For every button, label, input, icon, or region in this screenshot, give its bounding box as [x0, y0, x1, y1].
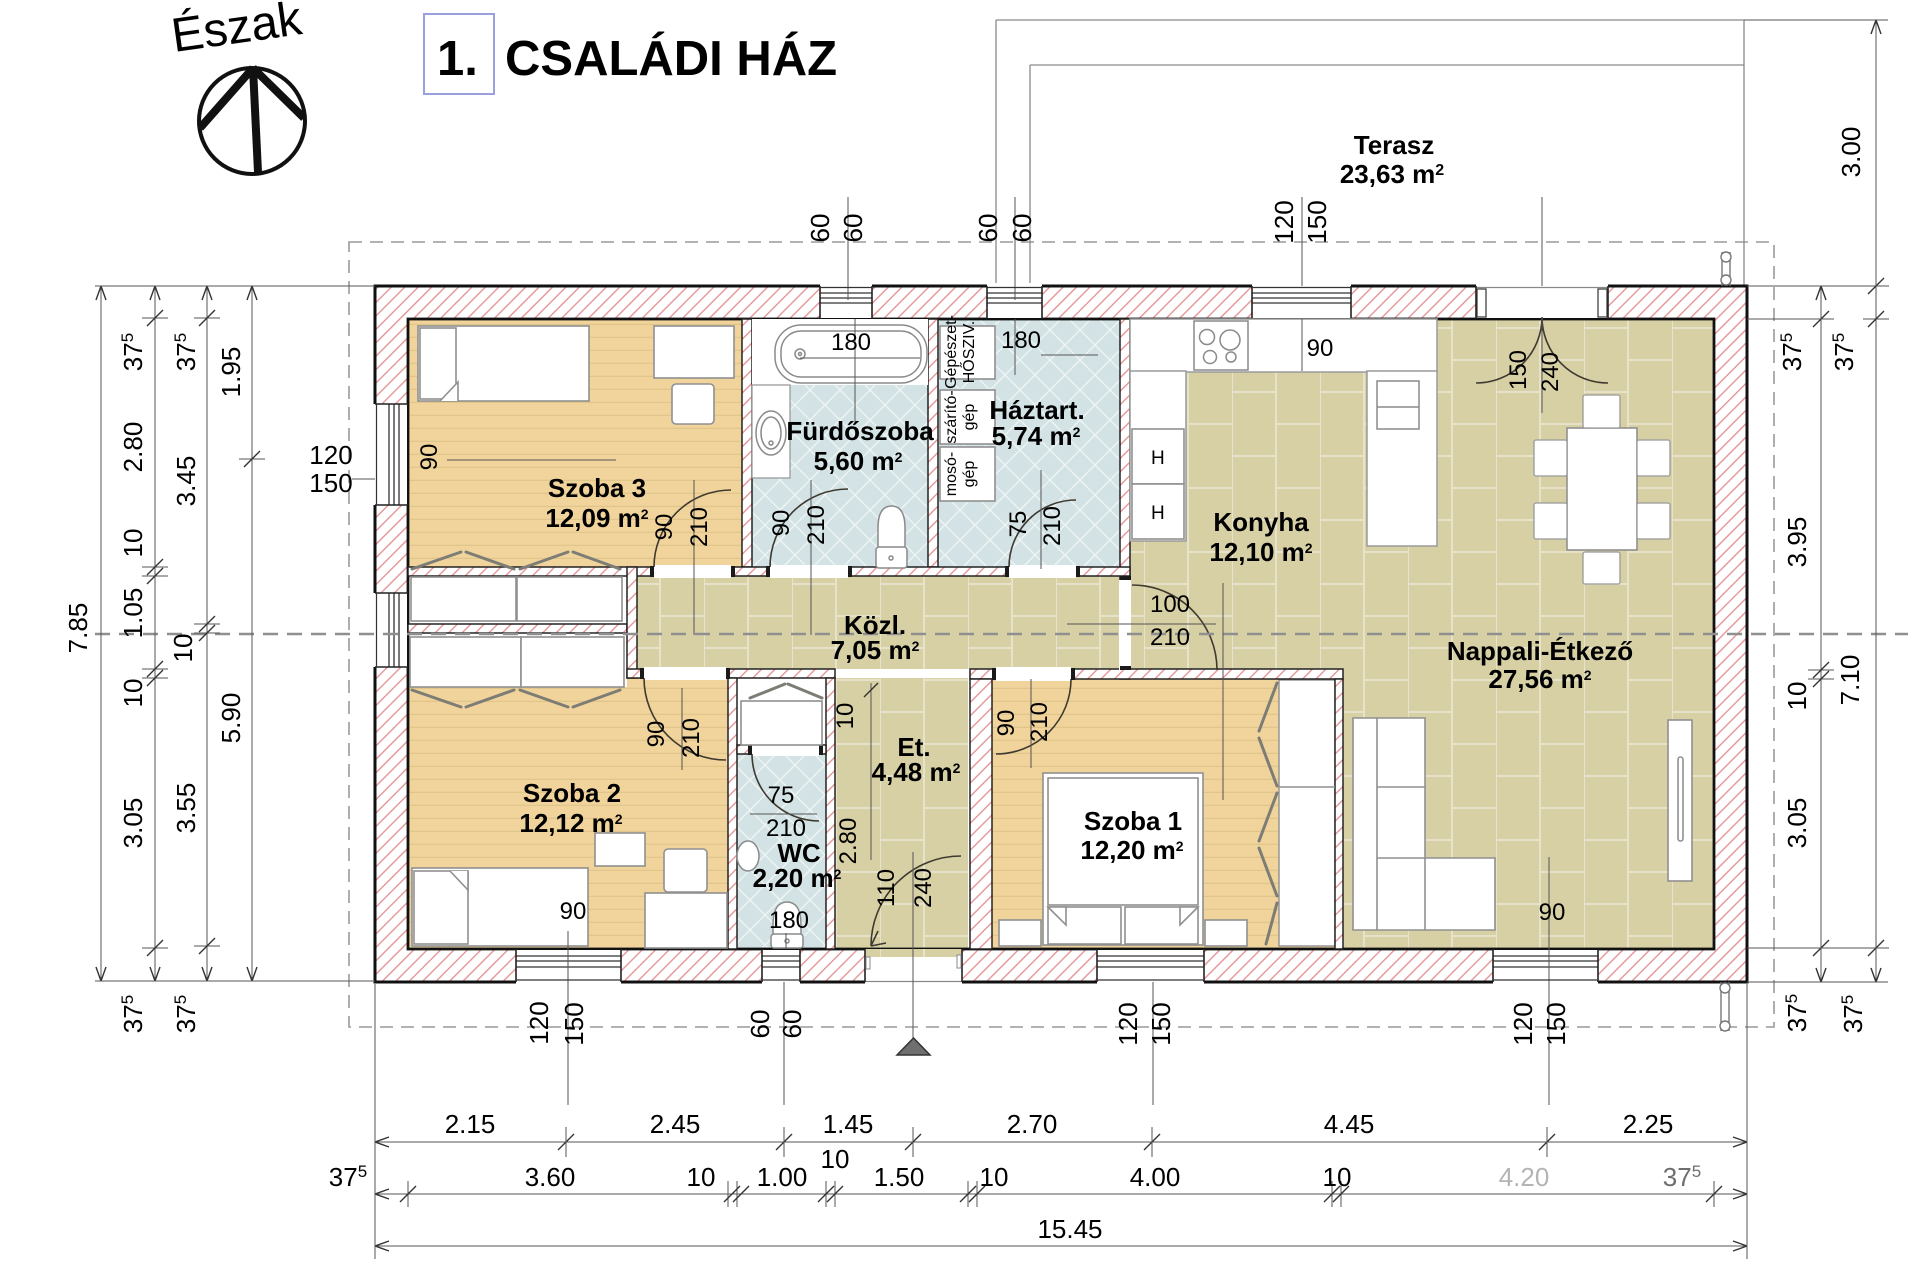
svg-text:Konyha: Konyha	[1213, 507, 1309, 537]
svg-text:12,12 m2: 12,12 m2	[519, 808, 622, 838]
svg-text:210: 210	[1039, 506, 1066, 546]
svg-text:3.05: 3.05	[1782, 798, 1812, 849]
svg-text:90: 90	[651, 514, 678, 541]
svg-text:120: 120	[524, 1001, 554, 1044]
svg-text:90: 90	[768, 510, 795, 537]
svg-text:210: 210	[686, 507, 713, 547]
svg-text:1.95: 1.95	[216, 347, 246, 398]
svg-text:10: 10	[832, 703, 859, 730]
svg-text:10: 10	[821, 1144, 850, 1174]
svg-text:3.60: 3.60	[525, 1162, 576, 1192]
svg-text:HŐSZIV.: HŐSZIV.	[959, 321, 978, 384]
svg-text:210: 210	[1150, 624, 1190, 651]
svg-text:150: 150	[309, 468, 352, 498]
svg-text:120: 120	[1113, 1002, 1143, 1045]
svg-text:2,20 m2: 2,20 m2	[753, 863, 842, 893]
svg-text:2.70: 2.70	[1007, 1109, 1058, 1139]
svg-text:10: 10	[687, 1162, 716, 1192]
svg-text:2.80: 2.80	[835, 818, 862, 865]
svg-text:Szoba 3: Szoba 3	[548, 473, 646, 503]
svg-text:90: 90	[993, 710, 1020, 737]
svg-text:60: 60	[1007, 214, 1037, 243]
svg-text:150: 150	[1302, 200, 1332, 243]
svg-text:10: 10	[118, 529, 148, 558]
svg-text:75: 75	[768, 782, 795, 809]
svg-text:210: 210	[678, 718, 705, 758]
svg-text:gép: gép	[961, 404, 978, 431]
svg-text:Szoba 2: Szoba 2	[523, 778, 621, 808]
svg-text:Gépészet-: Gépészet-	[943, 315, 960, 389]
svg-text:gép: gép	[961, 461, 978, 488]
svg-text:3.05: 3.05	[118, 798, 148, 849]
svg-text:90: 90	[416, 444, 443, 471]
svg-text:90: 90	[560, 898, 587, 925]
svg-text:7,05 m2: 7,05 m2	[831, 635, 920, 665]
svg-text:1.05: 1.05	[118, 588, 148, 639]
svg-text:1.50: 1.50	[874, 1162, 925, 1192]
svg-text:27,56 m2: 27,56 m2	[1488, 664, 1591, 694]
svg-text:120: 120	[1269, 200, 1299, 243]
svg-text:CSALÁDI HÁZ: CSALÁDI HÁZ	[505, 32, 837, 86]
svg-text:3.55: 3.55	[171, 783, 201, 834]
svg-text:10: 10	[1782, 682, 1812, 711]
svg-text:60: 60	[777, 1010, 807, 1039]
svg-text:60: 60	[805, 214, 835, 243]
svg-text:10: 10	[168, 634, 198, 663]
svg-text:7.10: 7.10	[1835, 655, 1865, 706]
svg-text:180: 180	[831, 329, 871, 356]
svg-text:150: 150	[1541, 1002, 1571, 1045]
svg-text:10: 10	[980, 1162, 1009, 1192]
svg-text:Terasz: Terasz	[1354, 130, 1434, 160]
svg-text:5,60 m2: 5,60 m2	[814, 446, 903, 476]
svg-text:75: 75	[1005, 511, 1032, 538]
svg-text:Fürdőszoba: Fürdőszoba	[786, 416, 934, 446]
svg-text:210: 210	[803, 505, 830, 545]
svg-text:mosó-: mosó-	[943, 452, 960, 496]
svg-text:4.45: 4.45	[1324, 1109, 1375, 1139]
svg-text:1.00: 1.00	[757, 1162, 808, 1192]
svg-text:150: 150	[559, 1002, 589, 1045]
svg-text:5,74 m2: 5,74 m2	[992, 421, 1081, 451]
svg-text:180: 180	[769, 907, 809, 934]
svg-text:2.45: 2.45	[650, 1109, 701, 1139]
svg-text:100: 100	[1150, 591, 1190, 618]
svg-text:4,48 m2: 4,48 m2	[872, 757, 961, 787]
svg-text:10: 10	[1323, 1162, 1352, 1192]
svg-text:2.15: 2.15	[445, 1109, 496, 1139]
svg-text:H: H	[1151, 448, 1165, 469]
svg-text:Nappali-Étkező: Nappali-Étkező	[1447, 636, 1633, 666]
svg-text:90: 90	[643, 721, 670, 748]
svg-text:12,10 m2: 12,10 m2	[1209, 537, 1312, 567]
svg-text:H: H	[1151, 503, 1165, 524]
svg-text:60: 60	[973, 214, 1003, 243]
svg-text:180: 180	[1001, 327, 1041, 354]
svg-text:15.45: 15.45	[1037, 1214, 1102, 1244]
svg-text:1.45: 1.45	[823, 1109, 874, 1139]
svg-text:60: 60	[838, 214, 868, 243]
svg-text:110: 110	[873, 869, 900, 907]
svg-text:240: 240	[910, 868, 937, 908]
svg-text:120: 120	[309, 440, 352, 470]
svg-text:60: 60	[745, 1010, 775, 1039]
svg-text:12,09 m2: 12,09 m2	[545, 503, 648, 533]
svg-text:240: 240	[1537, 352, 1564, 392]
svg-text:3.45: 3.45	[171, 456, 201, 507]
svg-text:23,63 m2: 23,63 m2	[1340, 159, 1444, 189]
svg-text:150: 150	[1146, 1002, 1176, 1045]
svg-text:12,20 m2: 12,20 m2	[1080, 835, 1183, 865]
svg-text:5.90: 5.90	[216, 693, 246, 744]
svg-text:150: 150	[1505, 350, 1532, 390]
svg-text:szárító-: szárító-	[943, 390, 960, 443]
svg-text:10: 10	[118, 679, 148, 708]
svg-text:2.25: 2.25	[1623, 1109, 1674, 1139]
svg-text:1.: 1.	[437, 32, 478, 86]
svg-text:3.95: 3.95	[1782, 517, 1812, 568]
svg-text:Szoba 1: Szoba 1	[1084, 806, 1182, 836]
svg-text:90: 90	[1307, 335, 1334, 362]
svg-text:7.85: 7.85	[63, 603, 93, 654]
svg-text:210: 210	[1026, 702, 1053, 742]
svg-text:4.00: 4.00	[1130, 1162, 1181, 1192]
svg-text:3.00: 3.00	[1836, 127, 1866, 178]
svg-text:90: 90	[1539, 899, 1566, 926]
svg-text:120: 120	[1508, 1002, 1538, 1045]
svg-text:4.20: 4.20	[1499, 1162, 1550, 1192]
svg-text:2.80: 2.80	[118, 422, 148, 473]
